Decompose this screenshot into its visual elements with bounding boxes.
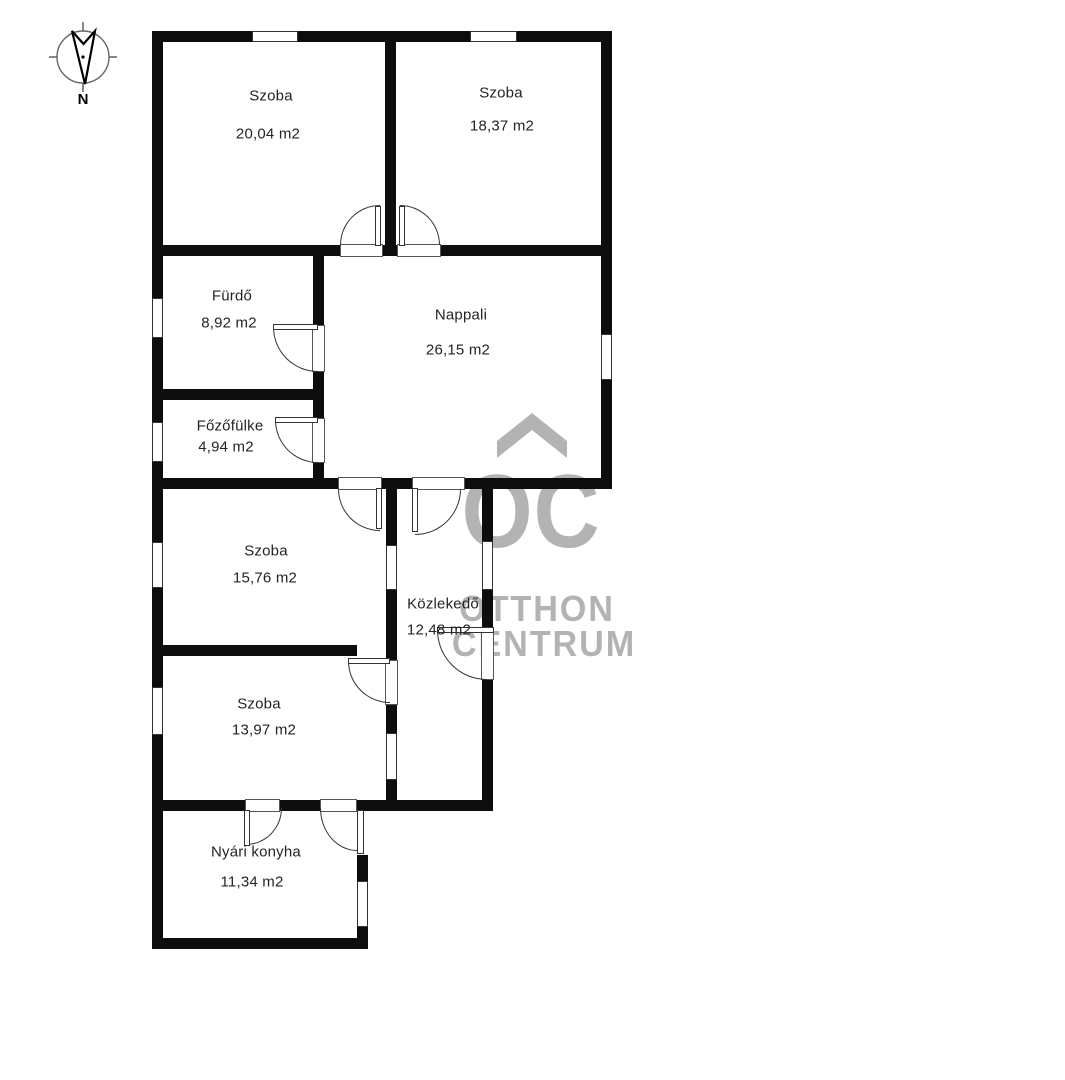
room-area-kozlekedo: 12,48 m2 xyxy=(407,622,471,639)
door-leaf xyxy=(412,488,418,532)
door-leaf xyxy=(375,206,381,246)
wall-top-outer xyxy=(152,31,612,42)
room-area-szoba-4: 13,97 m2 xyxy=(232,722,296,739)
door-swing-arc xyxy=(348,661,390,703)
floor-plan: OC OTTHON CENTRUM N xyxy=(0,0,1065,1080)
room-area-nyari-konyha: 11,34 m2 xyxy=(220,874,283,891)
room-area-furdo: 8,92 m2 xyxy=(201,315,257,332)
door-swing-arc xyxy=(400,205,440,245)
compass-north-label: N xyxy=(78,91,89,108)
window xyxy=(152,687,163,735)
room-area-szoba-2: 18,37 m2 xyxy=(470,118,534,135)
door-leaf xyxy=(273,324,318,330)
door-swing-arc xyxy=(273,327,318,372)
door-swing-arc xyxy=(246,808,282,845)
room-area-fozofulke: 4,94 m2 xyxy=(198,439,254,456)
room-name-nappali: Nappali xyxy=(435,307,487,324)
door-leaf xyxy=(244,810,250,846)
room-area-nappali: 26,15 m2 xyxy=(426,342,490,359)
room-name-furdo: Fürdő xyxy=(212,288,252,305)
room-name-nyari-konyha: Nyári konyha xyxy=(211,844,301,861)
window xyxy=(152,298,163,338)
room-name-szoba-2: Szoba xyxy=(479,85,523,102)
room-name-szoba-1: Szoba xyxy=(249,88,293,105)
door-leaf xyxy=(376,488,382,529)
door-leaf xyxy=(399,206,405,246)
compass: N xyxy=(46,14,124,108)
wall-nappali-bottom xyxy=(152,478,612,489)
window xyxy=(601,334,612,380)
wall-left-outer xyxy=(152,31,163,949)
door-swing-arc xyxy=(275,420,318,463)
wall-szoba-divider xyxy=(152,645,357,656)
door-leaf xyxy=(348,658,390,664)
window xyxy=(152,422,163,462)
window xyxy=(152,542,163,588)
window xyxy=(470,31,517,42)
window xyxy=(386,545,397,590)
door-swing-arc xyxy=(340,205,380,245)
window xyxy=(252,31,298,42)
room-name-szoba-3: Szoba xyxy=(244,543,288,560)
door-swing-arc xyxy=(415,489,461,535)
door-swing-arc xyxy=(320,808,357,851)
window xyxy=(386,733,397,780)
room-area-szoba-1: 20,04 m2 xyxy=(236,126,300,143)
window xyxy=(357,881,368,927)
wall-nyari-bottom xyxy=(152,938,368,949)
door-leaf xyxy=(357,810,364,854)
window xyxy=(482,541,493,590)
wall-right-outer xyxy=(601,31,612,489)
room-name-kozlekedo: Közlekedő xyxy=(407,596,479,613)
door-leaf xyxy=(275,417,318,423)
wall-top-center xyxy=(385,31,396,256)
room-area-szoba-3: 15,76 m2 xyxy=(233,570,297,587)
wall-furdo-fozofulke xyxy=(152,389,324,400)
room-name-fozofulke: Főzőfülke xyxy=(197,418,264,435)
door-swing-arc xyxy=(338,489,380,531)
room-name-szoba-4: Szoba xyxy=(237,696,281,713)
